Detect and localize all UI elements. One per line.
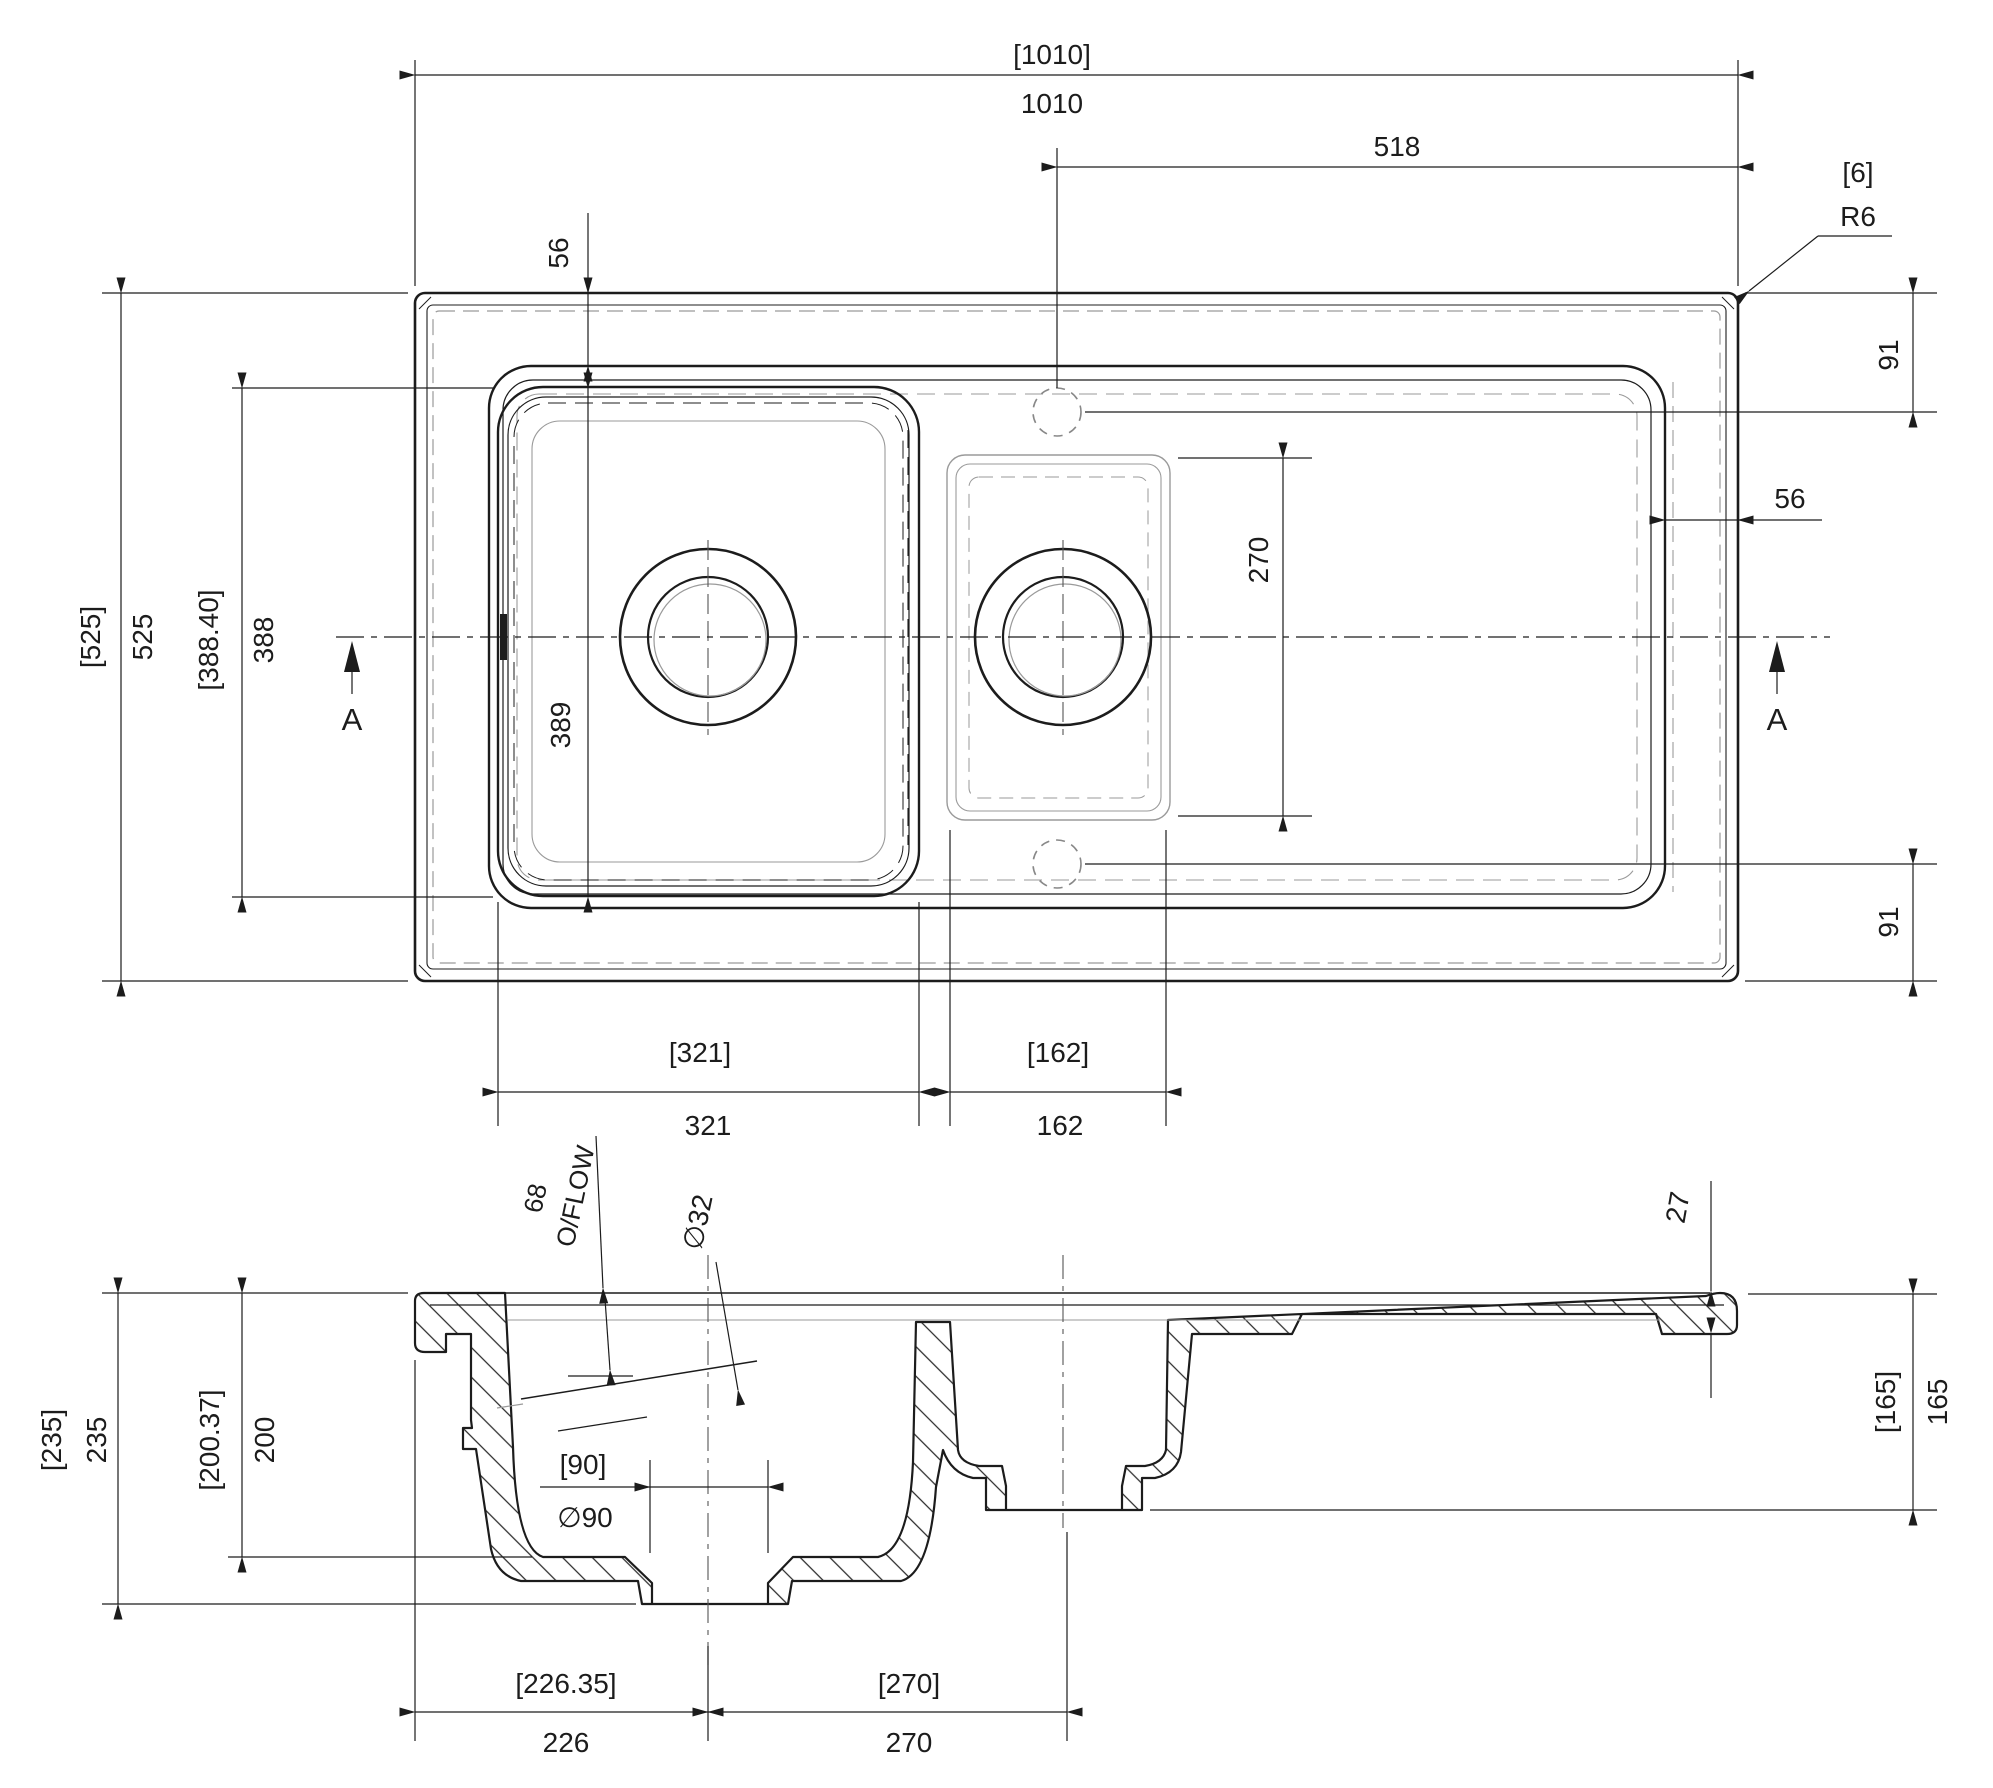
dim-tap-offset-top: 91 <box>1873 339 1904 370</box>
dim-half-width-ref: [162] <box>1027 1037 1089 1068</box>
plan-dimensions <box>102 60 1937 1126</box>
plan-view: [1010] 1010 518 [6] R6 56 91 56 270 [525… <box>75 39 1937 1141</box>
dim-rim-inset-right: 56 <box>1774 483 1805 514</box>
section-dim-texts: 68 O/FLOW ∅32 27 [235] 235 [200.37] 200 … <box>36 1142 1953 1758</box>
dim-bowl-width-ref: [321] <box>669 1037 731 1068</box>
dim-overflow-dia: ∅32 <box>677 1192 719 1253</box>
dim-tap-to-edge: 518 <box>1374 131 1421 162</box>
dim-bowl-width: 321 <box>685 1110 732 1141</box>
dim-overall-height: 235 <box>81 1417 112 1464</box>
section-material <box>415 1293 1737 1604</box>
plan-main-bowl <box>498 387 919 896</box>
dim-drain-spacing: 270 <box>886 1727 933 1758</box>
section-view: 68 O/FLOW ∅32 27 [235] 235 [200.37] 200 … <box>36 1136 1953 1758</box>
dim-tap-offset-bottom: 91 <box>1873 906 1904 937</box>
dim-depth: 525 <box>127 614 158 661</box>
tap-hole-bottom <box>1033 840 1081 888</box>
dim-bowl-len: 388 <box>248 617 279 664</box>
dim-width-ref: [1010] <box>1013 39 1091 70</box>
dim-waste-dia: ∅90 <box>557 1502 613 1533</box>
dim-overflow-label: O/FLOW <box>550 1142 601 1249</box>
dim-rim-inset-top: 56 <box>543 237 574 268</box>
dim-half-height: 165 <box>1922 1379 1953 1426</box>
dim-bowl-len-ref: [388.40] <box>193 589 224 690</box>
dim-overflow-height: 68 <box>518 1181 553 1216</box>
drawing-sheet: [1010] 1010 518 [6] R6 56 91 56 270 [525… <box>0 0 1993 1788</box>
section-marker-right <box>1769 641 1785 694</box>
dim-half-bowl-len: 270 <box>1243 537 1274 584</box>
dim-drain-spacing-ref: [270] <box>878 1668 940 1699</box>
section-label-right: A <box>1767 702 1788 737</box>
dim-drain-center: 226 <box>543 1727 590 1758</box>
dim-bowl-height-ref: [200.37] <box>194 1389 225 1490</box>
dim-corner-ref: [6] <box>1842 157 1873 188</box>
section-marker-left <box>344 641 360 694</box>
dim-edge-thickness: 27 <box>1660 1189 1696 1225</box>
overflow-line <box>521 1361 757 1399</box>
dim-corner-radius: R6 <box>1840 201 1876 232</box>
tap-hole-top <box>1033 388 1081 436</box>
section-label-left: A <box>342 702 363 737</box>
section-dimensions <box>102 1136 1937 1741</box>
plan-tap-holes <box>1033 148 1937 888</box>
dim-drain-center-ref: [226.35] <box>515 1668 616 1699</box>
dim-width: 1010 <box>1021 88 1083 119</box>
dim-bowl-inner-len: 389 <box>545 702 576 749</box>
sink-technical-drawing: [1010] 1010 518 [6] R6 56 91 56 270 [525… <box>0 0 1993 1788</box>
dim-depth-ref: [525] <box>75 606 106 668</box>
dim-overall-height-ref: [235] <box>36 1409 67 1471</box>
dim-bowl-height: 200 <box>249 1417 280 1464</box>
dim-half-height-ref: [165] <box>1870 1371 1901 1433</box>
dim-waste-ref: [90] <box>560 1449 607 1480</box>
dim-half-width: 162 <box>1037 1110 1084 1141</box>
